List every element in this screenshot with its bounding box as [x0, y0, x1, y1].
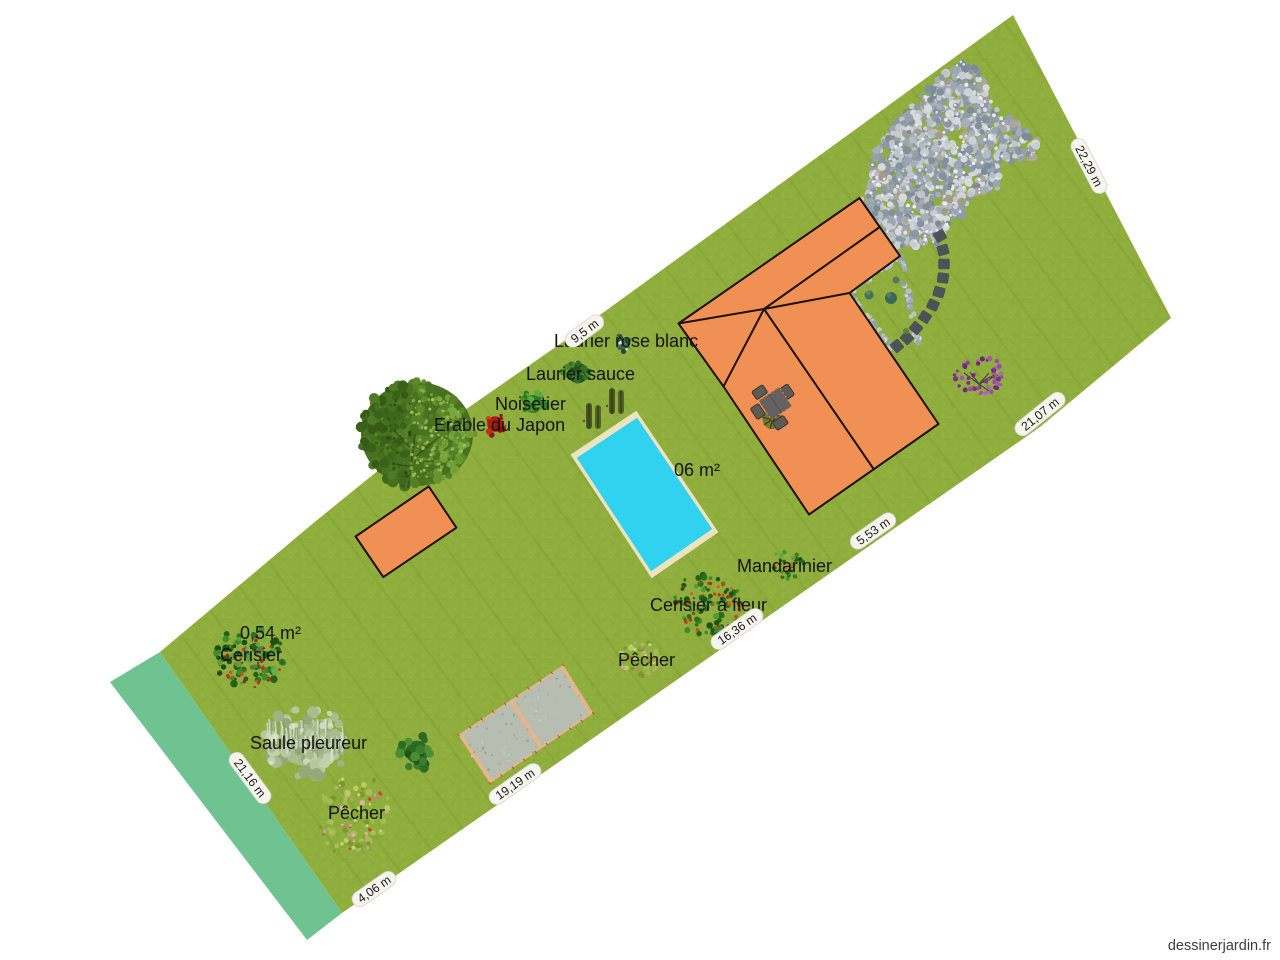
svg-text:dessinerjardin.fr: dessinerjardin.fr	[1168, 938, 1271, 954]
svg-text:Laurier sauce: Laurier sauce	[526, 364, 635, 384]
svg-text:Noisetier: Noisetier	[495, 394, 566, 414]
svg-text:Saule pleureur: Saule pleureur	[250, 733, 367, 753]
svg-text:06 m²: 06 m²	[674, 460, 720, 480]
svg-text:Pêcher: Pêcher	[328, 803, 385, 823]
svg-text:Pêcher: Pêcher	[618, 650, 675, 670]
svg-text:0,54 m²: 0,54 m²	[240, 623, 301, 643]
svg-text:Mandarinier: Mandarinier	[737, 556, 832, 576]
svg-text:Erable du Japon: Erable du Japon	[434, 415, 565, 435]
svg-text:Cerisier: Cerisier	[220, 645, 282, 665]
